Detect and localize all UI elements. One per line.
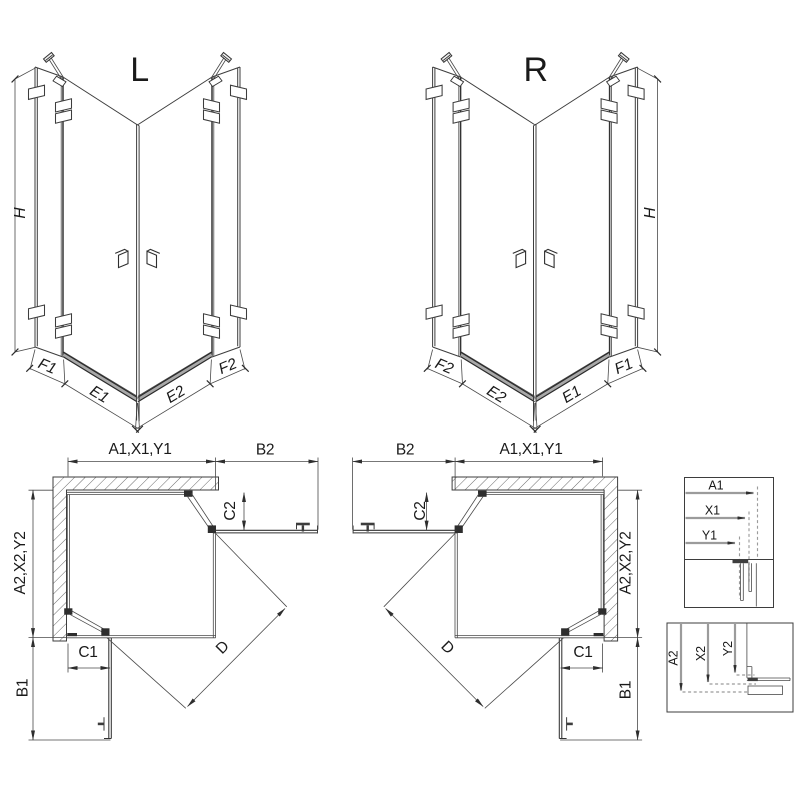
detail-top-dim-x1: X1 [705,503,720,517]
plan-view-right-geometry [353,458,643,741]
detail-top-dim-a1: A1 [708,478,723,492]
front-right-height-dim-label: H [642,207,659,219]
plan-view-left-geometry [29,458,319,741]
shower-enclosure-technical-drawing: L H F1 E1 E2 F2 R H F2 E2 E1 F1 A1,X1,Y1… [0,0,800,800]
front-right-dim-f2: F2 [433,355,457,378]
wall-hatch-left-plan [53,477,219,641]
front-left-dim-e2: E2 [163,382,188,407]
detail-bottom-dim-y2: Y2 [721,641,735,656]
plan-left-dim-b2: B2 [256,442,274,459]
plan-left-dim-d: D [213,638,233,658]
plan-left-dim-b1: B1 [15,679,32,697]
plan-left-dim-a2x2y2: A2,X2,Y2 [12,531,29,594]
front-left-dim-e1: E1 [87,382,112,406]
plan-right-dim-b2: B2 [396,442,414,459]
front-left-dim-f1: F1 [36,355,59,378]
front-right-dim-e1: E1 [559,382,584,406]
front-view-right-geometry [424,53,661,433]
plan-right-dim-c2: C2 [412,501,429,520]
plan-right-dim-c1: C1 [573,644,592,661]
plan-left-dim-c2: C2 [222,501,239,520]
front-left-variant-label: L [130,51,149,89]
plan-right-dim-a1x1y1: A1,X1,Y1 [499,441,562,458]
detail-top-dim-y1: Y1 [702,528,717,542]
detail-box-bottom-frame [667,623,793,712]
plan-left-dim-a1x1y1: A1,X1,Y1 [108,441,171,458]
front-right-dim-f1: F1 [612,355,635,378]
detail-box-bottom: A2 X2 Y2 [666,623,793,712]
front-right-variant-label: R [523,51,548,89]
front-left-height-dim-label: H [12,207,29,219]
wall-hatch-right-plan [452,477,617,641]
front-left-dim-f2: F2 [216,355,240,378]
plan-right-dim-d: D [437,638,457,658]
plan-left-dim-c1: C1 [78,644,97,661]
front-right-dim-e2: E2 [484,382,509,407]
plan-right-dim-a2x2y2: A2,X2,Y2 [618,531,635,594]
detail-box-top: A1 X1 Y1 [685,478,774,608]
detail-bottom-dim-a2: A2 [666,650,680,665]
detail-bottom-dim-x2: X2 [694,646,708,661]
plan-right-dim-b1: B1 [618,681,635,699]
